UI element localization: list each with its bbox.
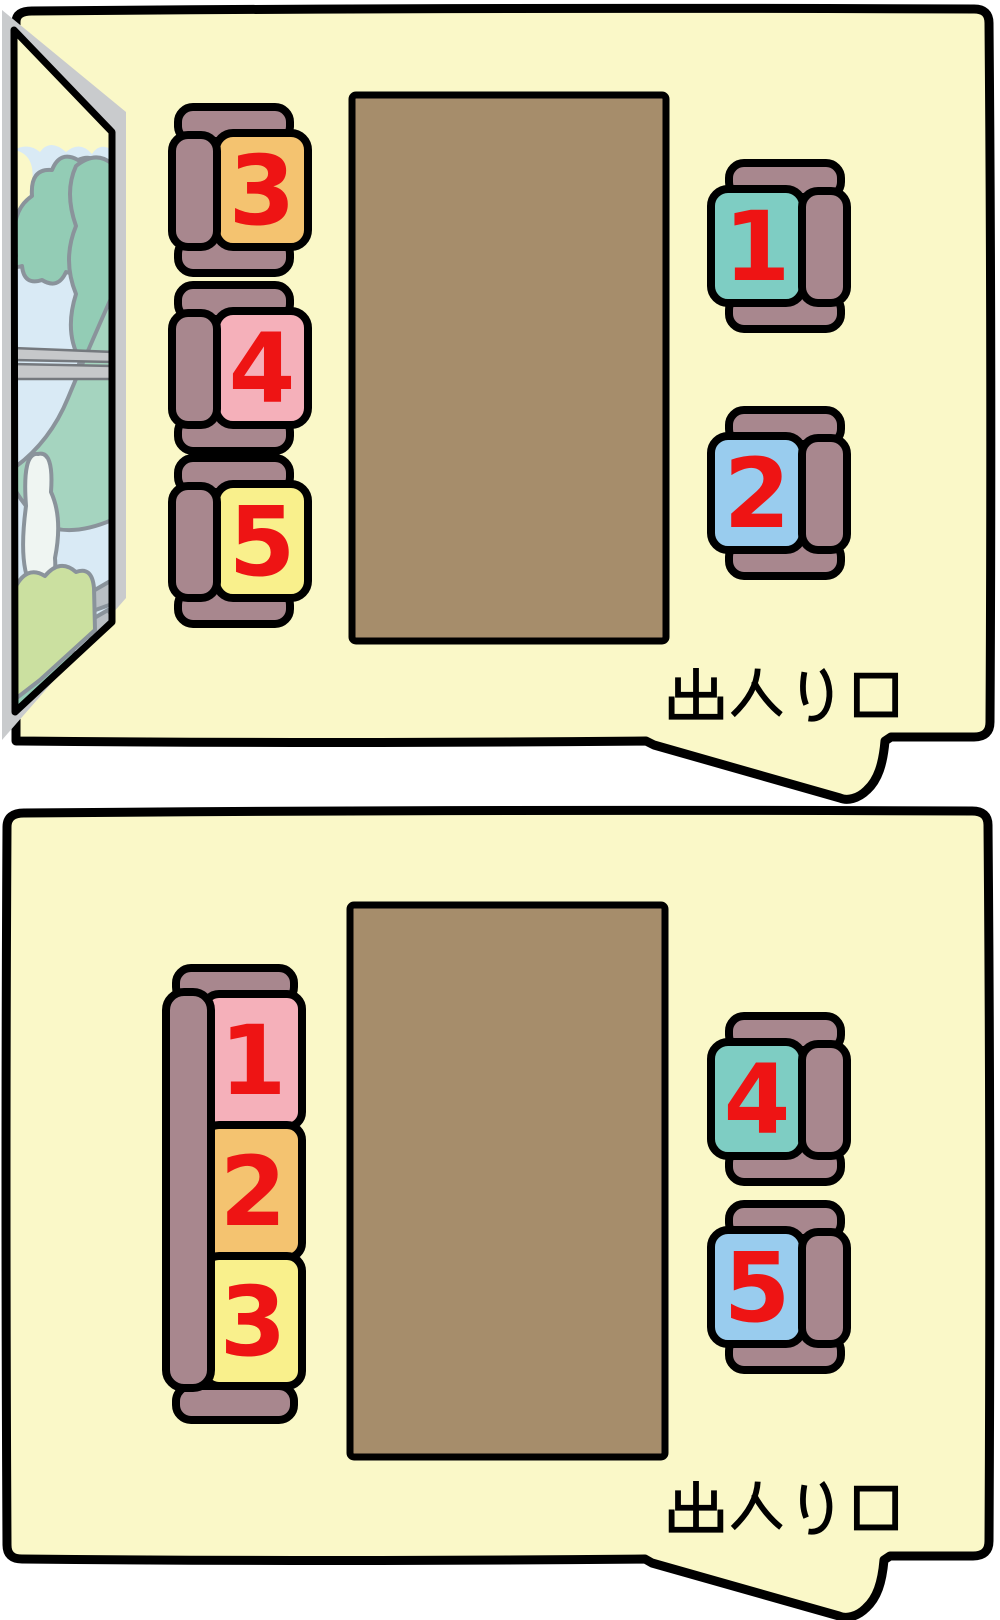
seat-4: 4 — [172, 285, 308, 451]
seating-diagram: 出入り口 出入り口 3 4 5 — [0, 0, 1000, 1620]
seat-5-number: 5 — [229, 486, 296, 598]
seat-4-backrest — [172, 313, 217, 425]
seat-b4-backrest — [802, 1044, 847, 1156]
sofa-seat-2-number: 2 — [220, 1136, 287, 1248]
seat-b4: 4 — [711, 1016, 847, 1182]
seat-2-number: 2 — [724, 438, 791, 550]
sofa-seat-3-number: 3 — [220, 1266, 287, 1378]
sofa-seat-1-number: 1 — [220, 1005, 287, 1117]
seat-2: 2 — [711, 410, 847, 576]
seat-3-number: 3 — [229, 135, 296, 247]
table-bottom-panel — [350, 905, 665, 1457]
seat-3: 3 — [172, 107, 308, 273]
seat-3-backrest — [172, 135, 217, 247]
sofa-backrest — [166, 992, 211, 1388]
room-panel-bottom: 1 2 3 4 5 — [6, 810, 990, 1617]
seat-1-backrest — [802, 191, 847, 303]
room-panel-top: 3 4 5 1 2 — [2, 8, 991, 799]
window — [2, 10, 126, 740]
seat-b5-number: 5 — [724, 1232, 791, 1344]
seat-1-number: 1 — [724, 191, 791, 303]
table-top-panel — [352, 95, 666, 641]
seat-5: 5 — [172, 458, 308, 624]
seat-b5-backrest — [802, 1232, 847, 1344]
seat-5-backrest — [172, 486, 217, 598]
seat-b5: 5 — [711, 1204, 847, 1370]
seat-1: 1 — [711, 163, 847, 329]
seat-2-backrest — [802, 438, 847, 550]
seat-b4-number: 4 — [724, 1044, 791, 1156]
seat-4-number: 4 — [229, 313, 296, 425]
diagram-canvas: 3 4 5 1 2 — [0, 0, 1000, 1620]
sofa-left: 1 2 3 — [166, 968, 302, 1420]
